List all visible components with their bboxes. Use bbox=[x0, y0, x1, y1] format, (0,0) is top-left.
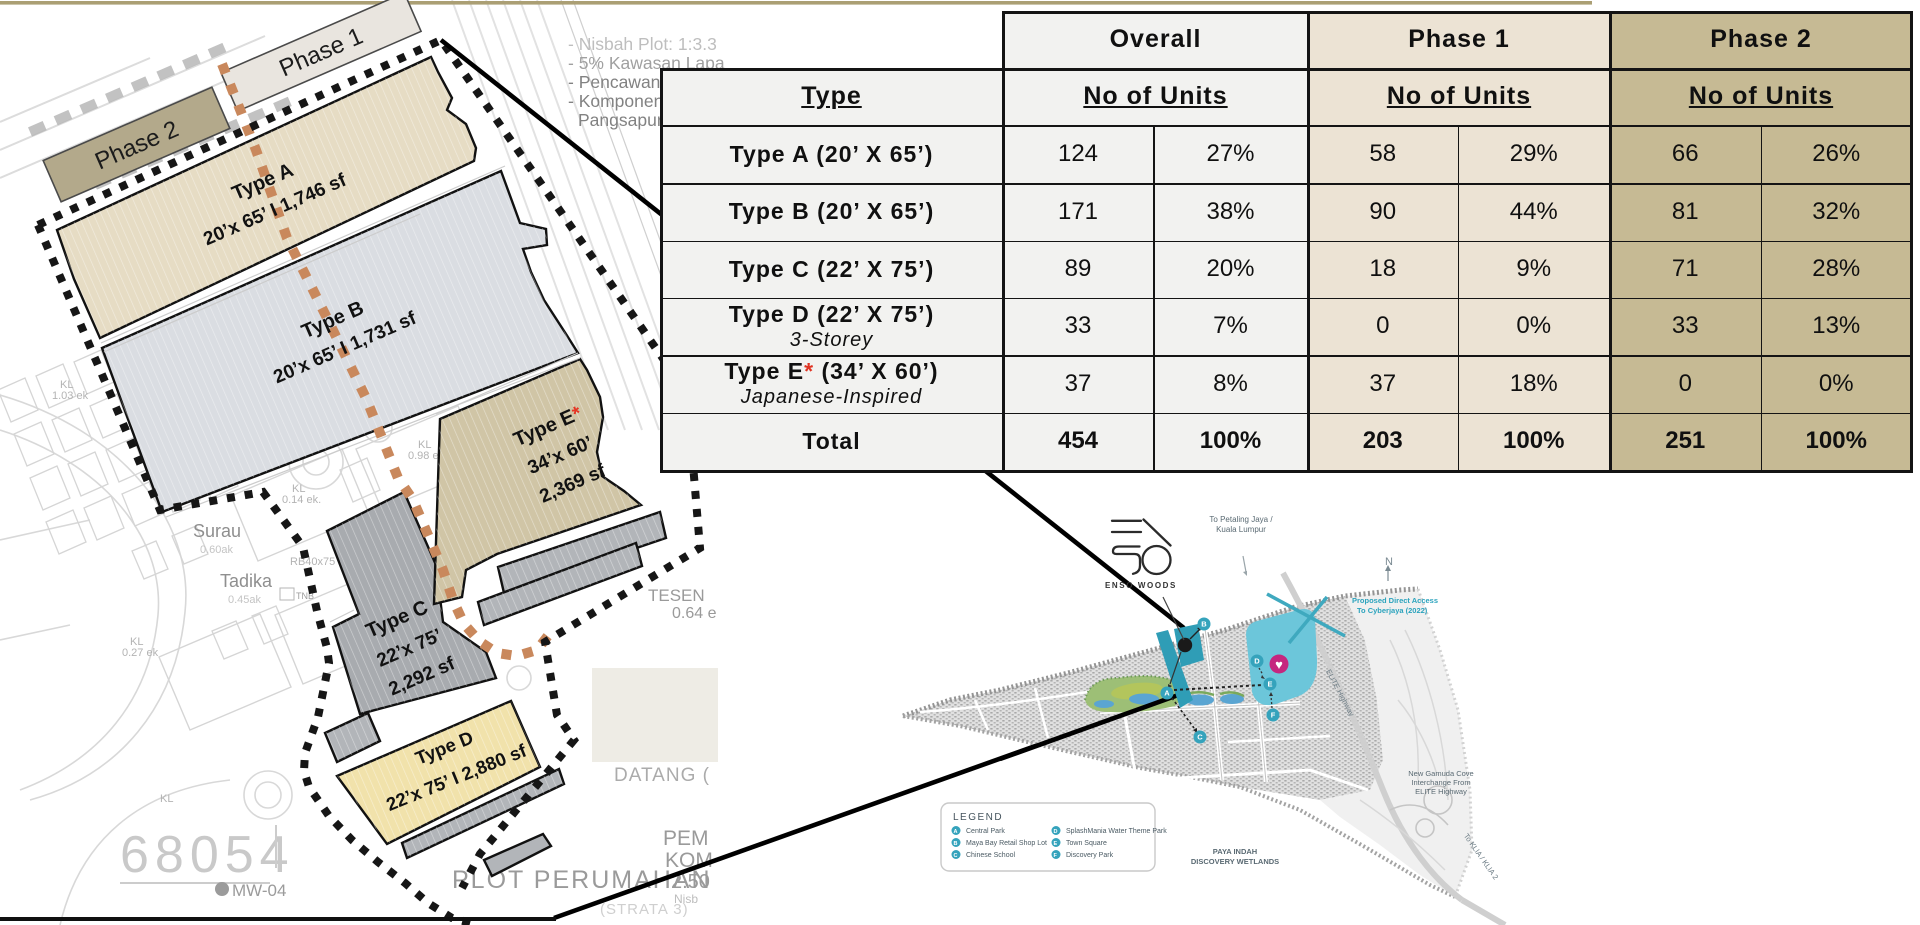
svg-text:0.27 ek: 0.27 ek bbox=[122, 647, 159, 659]
svg-text:ENSO WOODS: ENSO WOODS bbox=[1105, 581, 1177, 590]
svg-text:Kuala Lumpur: Kuala Lumpur bbox=[1216, 525, 1266, 534]
svg-text:C: C bbox=[954, 853, 958, 859]
svg-text:- Pencawang: - Pencawang bbox=[568, 72, 670, 92]
svg-text:PEM: PEM bbox=[663, 827, 709, 850]
svg-text:Pangsapuri: Pangsapuri bbox=[578, 110, 667, 130]
svg-text:Central Park: Central Park bbox=[966, 828, 1005, 835]
svg-text:KL: KL bbox=[160, 793, 173, 805]
svg-text:Chinese School: Chinese School bbox=[966, 852, 1015, 859]
svg-text:To Petaling Jaya /: To Petaling Jaya / bbox=[1209, 515, 1273, 524]
svg-text:N: N bbox=[1385, 556, 1393, 568]
svg-text:0.64 e: 0.64 e bbox=[672, 605, 717, 622]
svg-text:MW-04: MW-04 bbox=[232, 881, 286, 900]
svg-text:- Nisbah Plot: 1:3.3: - Nisbah Plot: 1:3.3 bbox=[568, 34, 717, 54]
svg-text:A: A bbox=[1164, 689, 1170, 698]
svg-text:LEGEND: LEGEND bbox=[953, 812, 1003, 823]
svg-text:A: A bbox=[954, 829, 958, 835]
svg-text:D: D bbox=[1254, 657, 1260, 666]
svg-text:F: F bbox=[1271, 711, 1276, 720]
svg-text:To Cyberjaya (2022): To Cyberjaya (2022) bbox=[1357, 606, 1428, 615]
svg-text:0.60ak: 0.60ak bbox=[200, 544, 234, 556]
svg-text:B: B bbox=[1201, 620, 1207, 629]
svg-text:Town Square: Town Square bbox=[1066, 840, 1107, 847]
svg-text:Maya Bay Retail Shop Lot: Maya Bay Retail Shop Lot bbox=[966, 840, 1047, 847]
svg-text:68054: 68054 bbox=[120, 826, 295, 884]
svg-text:Discovery Park: Discovery Park bbox=[1066, 852, 1114, 859]
svg-text:DISCOVERY WETLANDS: DISCOVERY WETLANDS bbox=[1191, 857, 1279, 866]
svg-text:0.14 ek.: 0.14 ek. bbox=[282, 494, 321, 506]
svg-text:TESEN: TESEN bbox=[648, 586, 705, 605]
svg-text:♥: ♥ bbox=[1275, 657, 1283, 672]
svg-text:1.03 ek: 1.03 ek bbox=[52, 390, 89, 402]
svg-text:New Gamuda Cove: New Gamuda Cove bbox=[1408, 769, 1473, 778]
svg-text:Surau: Surau bbox=[193, 521, 241, 541]
svg-text:B: B bbox=[954, 841, 958, 847]
svg-text:C: C bbox=[1197, 733, 1203, 742]
svg-text:Proposed Direct Access: Proposed Direct Access bbox=[1352, 596, 1438, 605]
svg-text:SplashMania Water Theme Park: SplashMania Water Theme Park bbox=[1066, 828, 1167, 835]
svg-text:RB40x75: RB40x75 bbox=[290, 556, 335, 568]
svg-text:PAYA INDAH: PAYA INDAH bbox=[1213, 847, 1257, 856]
svg-text:D: D bbox=[1054, 829, 1058, 835]
svg-text:0.45ak: 0.45ak bbox=[228, 594, 262, 606]
svg-text:ELITE Highway: ELITE Highway bbox=[1415, 787, 1467, 796]
svg-text:Tadika: Tadika bbox=[220, 571, 273, 591]
svg-text:E: E bbox=[1054, 841, 1058, 847]
svg-text:- Komponen: - Komponen bbox=[568, 91, 663, 111]
svg-text:Interchange From: Interchange From bbox=[1411, 778, 1470, 787]
svg-text:Nisb: Nisb bbox=[674, 892, 698, 906]
svg-text:E: E bbox=[1267, 680, 1272, 689]
svg-text:DATANG (: DATANG ( bbox=[614, 765, 710, 786]
